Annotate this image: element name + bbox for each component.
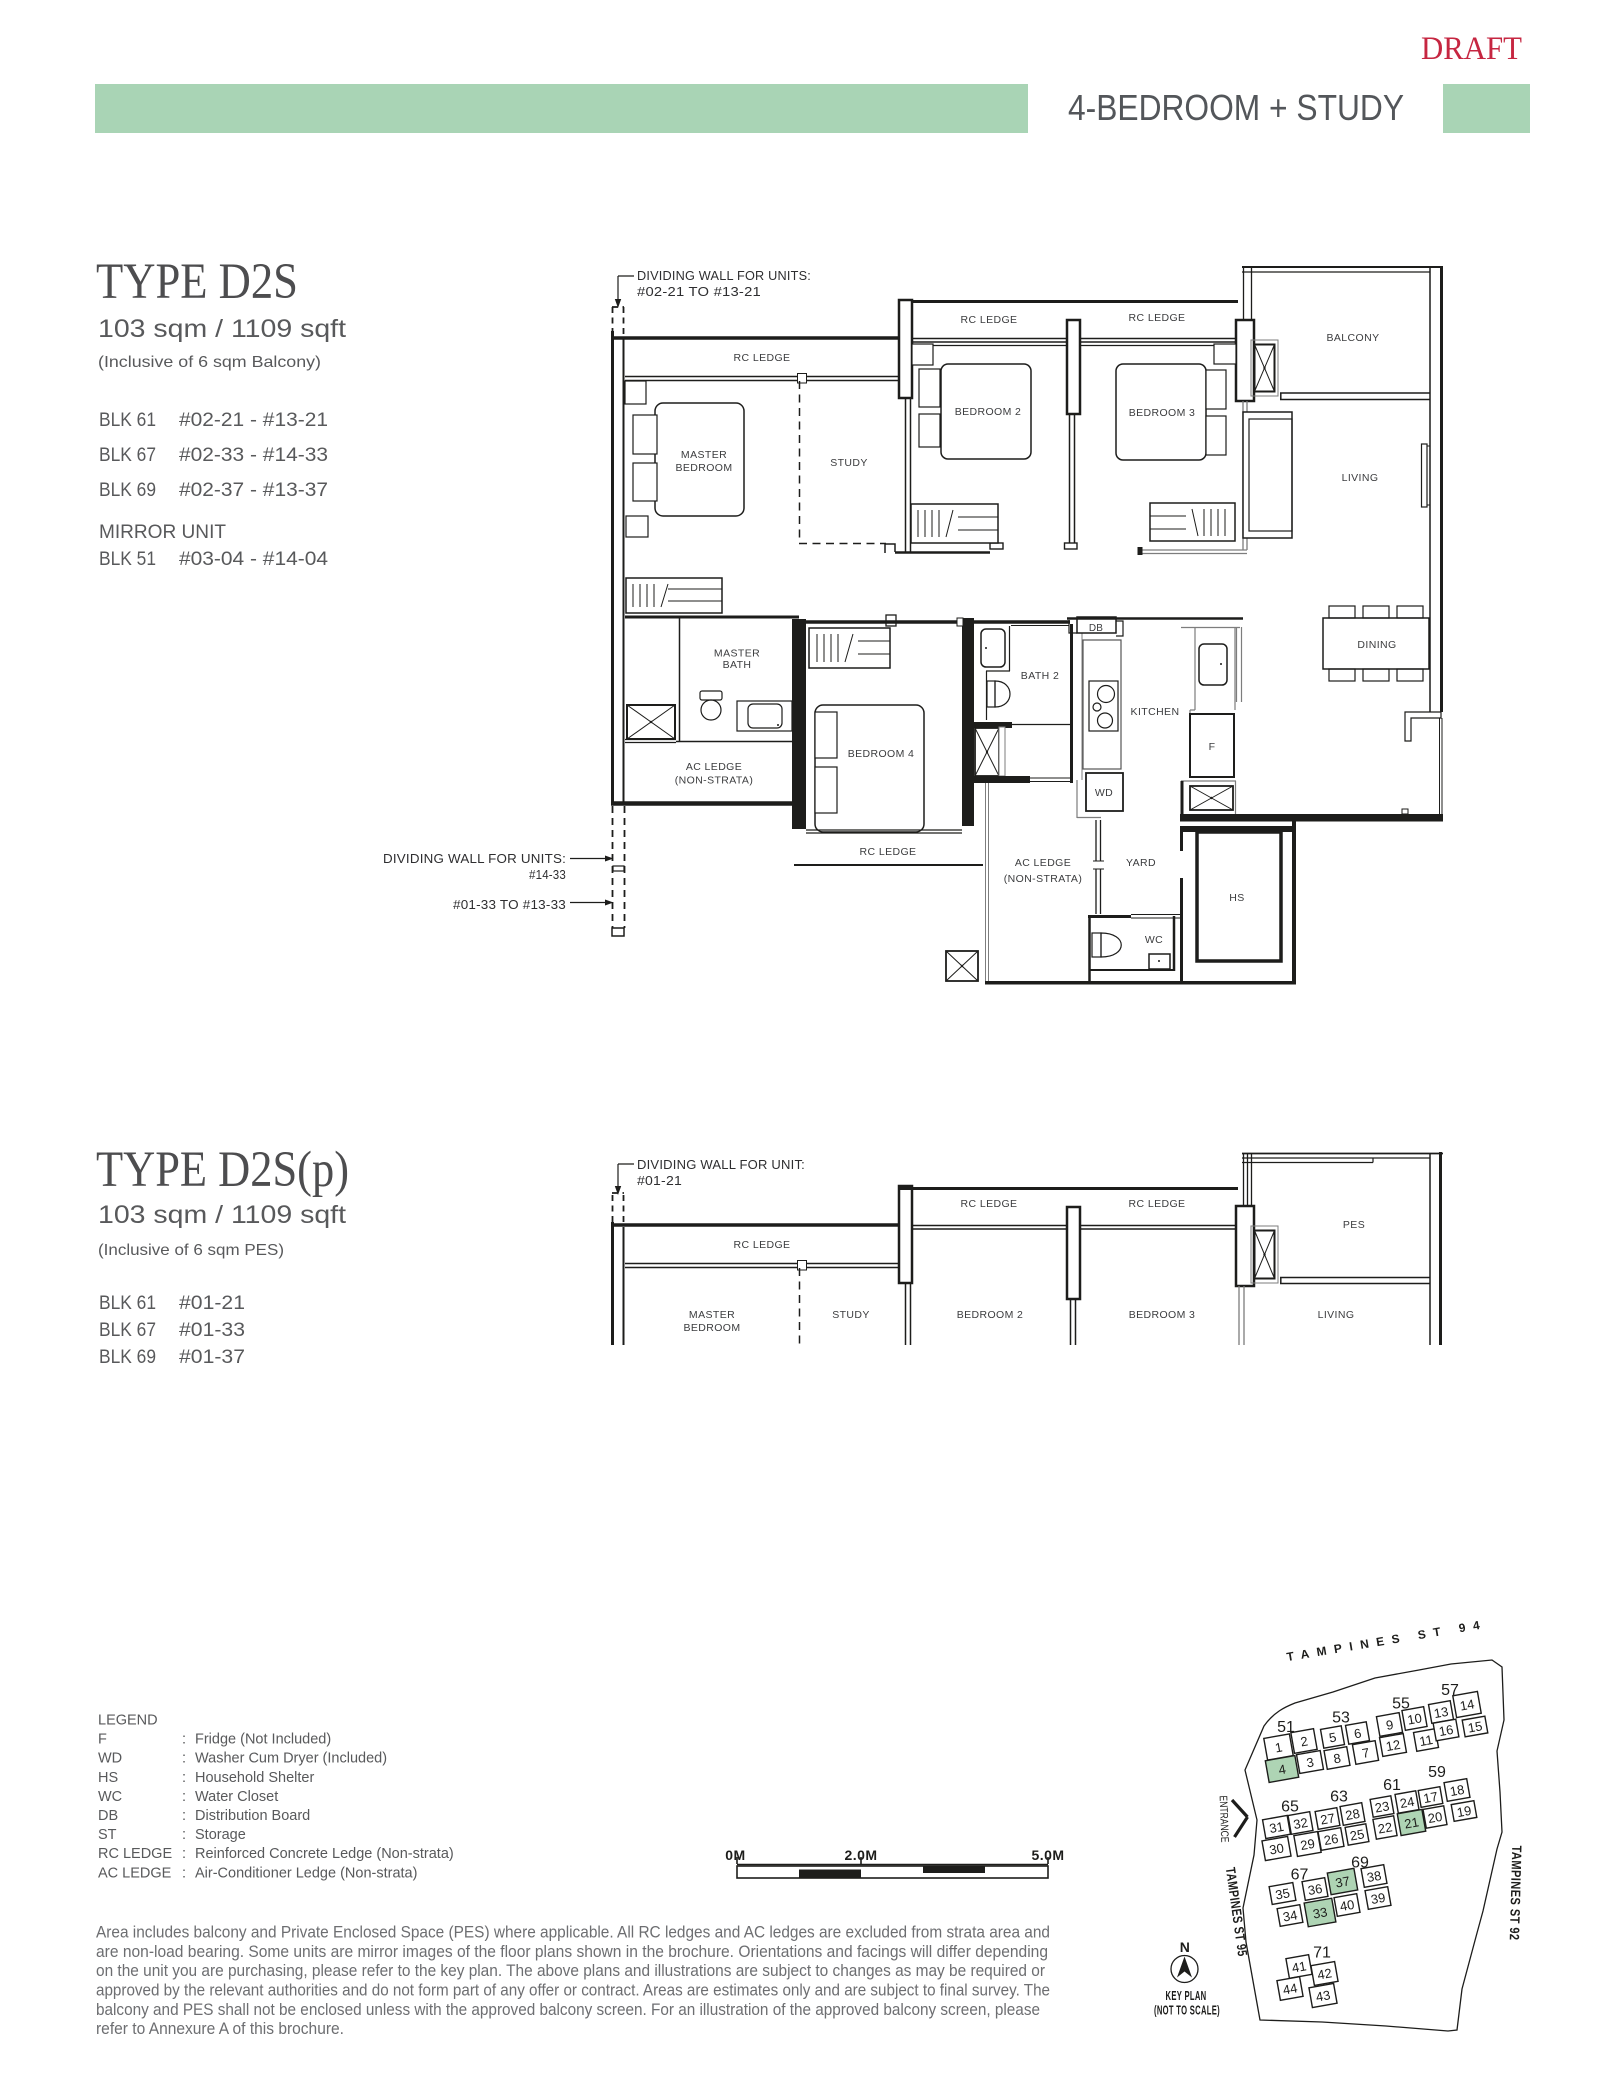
- svg-text:RC LEDGE: RC LEDGE: [961, 314, 1018, 326]
- svg-text:KITCHEN: KITCHEN: [1131, 706, 1180, 718]
- svg-text:DINING: DINING: [1357, 639, 1396, 651]
- svg-text:59: 59: [1428, 1764, 1446, 1781]
- svg-text:0M: 0M: [725, 1847, 745, 1863]
- svg-text::: :: [182, 1789, 186, 1805]
- svg-text:DB: DB: [1089, 623, 1103, 634]
- svg-text:DRAFT: DRAFT: [1421, 31, 1522, 67]
- svg-text:4-BEDROOM + STUDY: 4-BEDROOM + STUDY: [1068, 87, 1404, 128]
- svg-text:(NOT TO SCALE): (NOT TO SCALE): [1154, 2004, 1220, 2018]
- svg-text:(NON-STRATA): (NON-STRATA): [1004, 873, 1083, 885]
- svg-text:#02-33 - #14-33: #02-33 - #14-33: [179, 445, 328, 466]
- svg-text:22: 22: [1377, 1819, 1394, 1836]
- svg-text:DIVIDING WALL FOR UNITS:: DIVIDING WALL FOR UNITS:: [637, 269, 811, 283]
- svg-text:11: 11: [1418, 1732, 1434, 1749]
- svg-text:DB: DB: [98, 1808, 118, 1824]
- svg-text:WC: WC: [1145, 934, 1163, 946]
- svg-text::: :: [182, 1827, 186, 1843]
- svg-text:40: 40: [1339, 1897, 1356, 1914]
- svg-text:BALCONY: BALCONY: [1327, 332, 1380, 344]
- svg-text:Water Closet: Water Closet: [195, 1789, 278, 1805]
- svg-text:35: 35: [1274, 1885, 1291, 1902]
- svg-text::: :: [182, 1751, 186, 1767]
- svg-text:TAMPINES ST 94: TAMPINES ST 94: [1286, 1618, 1482, 1664]
- svg-text:F: F: [98, 1732, 107, 1748]
- svg-text:#02-21 TO #13-21: #02-21 TO #13-21: [637, 285, 761, 299]
- svg-text:19: 19: [1456, 1803, 1473, 1820]
- svg-text:#01-33: #01-33: [179, 1320, 245, 1341]
- svg-text:(Inclusive of 6 sqm PES): (Inclusive of 6 sqm PES): [98, 1242, 284, 1259]
- svg-text:BEDROOM: BEDROOM: [683, 1322, 740, 1334]
- svg-text:24: 24: [1399, 1794, 1416, 1811]
- svg-text:BLK 61: BLK 61: [99, 410, 156, 431]
- svg-text:are non-load bearing. Some uni: are non-load bearing. Some units are mir…: [96, 1942, 1048, 1961]
- svg-text:37: 37: [1334, 1873, 1351, 1890]
- svg-text:AC LEDGE: AC LEDGE: [98, 1865, 172, 1881]
- svg-text:STUDY: STUDY: [830, 457, 868, 469]
- svg-text:RC LEDGE: RC LEDGE: [1129, 312, 1186, 324]
- svg-text:32: 32: [1292, 1815, 1309, 1832]
- svg-text:RC LEDGE: RC LEDGE: [1129, 1198, 1186, 1210]
- svg-text:53: 53: [1332, 1710, 1350, 1727]
- svg-text:#01-37: #01-37: [179, 1347, 245, 1368]
- svg-text:23: 23: [1374, 1798, 1391, 1815]
- svg-text:28: 28: [1344, 1806, 1361, 1823]
- svg-text:RC LEDGE: RC LEDGE: [734, 352, 791, 364]
- svg-text:#03-04 - #14-04: #03-04 - #14-04: [179, 549, 328, 570]
- svg-text:69: 69: [1351, 1855, 1369, 1872]
- svg-text:Area includes balcony and Priv: Area includes balcony and Private Enclos…: [96, 1923, 1050, 1942]
- svg-text:BLK 61: BLK 61: [99, 1293, 156, 1314]
- svg-text:STUDY: STUDY: [832, 1309, 870, 1321]
- svg-text:65: 65: [1281, 1799, 1299, 1816]
- svg-text:DIVIDING WALL FOR UNITS:: DIVIDING WALL FOR UNITS:: [383, 852, 566, 866]
- svg-text:12: 12: [1385, 1737, 1402, 1754]
- svg-text:29: 29: [1299, 1836, 1316, 1853]
- svg-text:33: 33: [1312, 1904, 1329, 1921]
- svg-text:#01-33 TO #13-33: #01-33 TO #13-33: [453, 898, 566, 912]
- svg-text::: :: [182, 1865, 186, 1881]
- svg-text:18: 18: [1449, 1782, 1466, 1799]
- svg-text:balcony and PES shall not be e: balcony and PES shall not be enclosed un…: [96, 2000, 1040, 2019]
- svg-text:21: 21: [1403, 1814, 1420, 1831]
- svg-text:BLK 51: BLK 51: [99, 549, 156, 570]
- svg-text:36: 36: [1307, 1881, 1324, 1898]
- svg-text:Fridge (Not Included): Fridge (Not Included): [195, 1732, 331, 1748]
- svg-text:Storage: Storage: [195, 1827, 246, 1843]
- svg-text:MASTER: MASTER: [681, 449, 727, 461]
- svg-text:(Inclusive of 6 sqm Balcony): (Inclusive of 6 sqm Balcony): [98, 354, 321, 371]
- svg-text:34: 34: [1282, 1907, 1299, 1924]
- svg-text:31: 31: [1268, 1819, 1285, 1836]
- svg-text:PES: PES: [1343, 1219, 1365, 1231]
- svg-text::: :: [182, 1770, 186, 1786]
- svg-text:26: 26: [1323, 1831, 1340, 1848]
- svg-text:103 sqm / 1109 sqft: 103 sqm / 1109 sqft: [98, 1201, 346, 1229]
- svg-text:39: 39: [1370, 1890, 1387, 1907]
- svg-text:25: 25: [1349, 1826, 1366, 1843]
- svg-text:WD: WD: [98, 1751, 122, 1767]
- svg-text:Washer Cum Dryer (Included): Washer Cum Dryer (Included): [195, 1751, 387, 1767]
- svg-text:MIRROR UNIT: MIRROR UNIT: [99, 522, 226, 543]
- svg-text:Reinforced Concrete Ledge (Non: Reinforced Concrete Ledge (Non-strata): [195, 1846, 454, 1862]
- svg-text:Household Shelter: Household Shelter: [195, 1770, 314, 1786]
- svg-text:#01-21: #01-21: [179, 1293, 245, 1314]
- svg-text:55: 55: [1392, 1696, 1410, 1713]
- svg-text:BEDROOM 3: BEDROOM 3: [1129, 407, 1196, 419]
- svg-text:#02-21 - #13-21: #02-21 - #13-21: [179, 410, 328, 431]
- svg-text::: :: [182, 1808, 186, 1824]
- svg-text:on the unit you are purchasing: on the unit you are purchasing, please r…: [96, 1961, 1045, 1980]
- svg-text:Air-Conditioner Ledge (Non-str: Air-Conditioner Ledge (Non-strata): [195, 1865, 417, 1881]
- svg-text:WD: WD: [1095, 787, 1113, 799]
- svg-text:#02-37 - #13-37: #02-37 - #13-37: [179, 480, 328, 501]
- svg-text:MASTER: MASTER: [714, 648, 760, 660]
- svg-text:BLK 67: BLK 67: [99, 445, 156, 466]
- svg-text:DIVIDING WALL FOR UNIT:: DIVIDING WALL FOR UNIT:: [637, 1158, 805, 1172]
- svg-text:RC LEDGE: RC LEDGE: [860, 846, 917, 858]
- svg-text:63: 63: [1330, 1789, 1348, 1806]
- svg-text::: :: [182, 1846, 186, 1862]
- svg-text:RC LEDGE: RC LEDGE: [98, 1846, 172, 1862]
- svg-text:16: 16: [1438, 1722, 1455, 1739]
- svg-text:LIVING: LIVING: [1342, 472, 1379, 484]
- svg-text:AC LEDGE: AC LEDGE: [686, 761, 742, 773]
- svg-text:LIVING: LIVING: [1318, 1309, 1355, 1321]
- svg-text:KEY PLAN: KEY PLAN: [1166, 1989, 1207, 2003]
- svg-text:TAMPINES ST 92: TAMPINES ST 92: [1507, 1845, 1524, 1940]
- svg-text:61: 61: [1383, 1777, 1401, 1794]
- svg-text::: :: [182, 1732, 186, 1748]
- svg-text:BEDROOM 4: BEDROOM 4: [848, 748, 915, 760]
- svg-text:F: F: [1209, 741, 1216, 753]
- svg-text:YARD: YARD: [1126, 857, 1156, 869]
- svg-text:67: 67: [1291, 1867, 1309, 1884]
- svg-text:(NON-STRATA): (NON-STRATA): [675, 775, 754, 787]
- svg-text:51: 51: [1277, 1719, 1295, 1736]
- svg-text:WC: WC: [98, 1789, 122, 1805]
- svg-text:refer to Annexure A of this br: refer to Annexure A of this brochure.: [96, 2019, 344, 2038]
- svg-text:103 sqm / 1109 sqft: 103 sqm / 1109 sqft: [98, 315, 346, 343]
- svg-text:43: 43: [1315, 1987, 1332, 2004]
- svg-text:27: 27: [1319, 1810, 1336, 1827]
- svg-text:41: 41: [1291, 1958, 1308, 1975]
- svg-text:15: 15: [1467, 1718, 1484, 1735]
- svg-text:HS: HS: [98, 1770, 118, 1786]
- svg-text:57: 57: [1441, 1682, 1459, 1699]
- svg-text:20: 20: [1427, 1809, 1444, 1826]
- svg-text:LEGEND: LEGEND: [98, 1713, 158, 1729]
- svg-text:BEDROOM 2: BEDROOM 2: [955, 406, 1022, 418]
- svg-text:TAMPINES ST 95: TAMPINES ST 95: [1223, 1866, 1250, 1957]
- svg-text:MASTER: MASTER: [689, 1309, 735, 1321]
- svg-text:71: 71: [1313, 1945, 1331, 1962]
- svg-text:HS: HS: [1229, 892, 1244, 904]
- svg-text:44: 44: [1282, 1980, 1299, 1997]
- svg-text:#01-21: #01-21: [637, 1174, 682, 1188]
- svg-text:#14-33: #14-33: [529, 868, 566, 882]
- svg-text:30: 30: [1268, 1840, 1285, 1857]
- svg-text:BLK 69: BLK 69: [99, 1347, 156, 1368]
- svg-text:BEDROOM: BEDROOM: [675, 462, 732, 474]
- svg-text:TYPE D2S(p): TYPE D2S(p): [96, 1142, 349, 1198]
- svg-text:13: 13: [1433, 1704, 1450, 1721]
- svg-text:BEDROOM 3: BEDROOM 3: [1129, 1309, 1196, 1321]
- svg-text:BEDROOM 2: BEDROOM 2: [957, 1309, 1024, 1321]
- svg-text:14: 14: [1459, 1696, 1476, 1713]
- svg-text:approved by the relevant autho: approved by the relevant authorities and…: [96, 1981, 1050, 2000]
- svg-text:BATH 2: BATH 2: [1021, 670, 1059, 682]
- svg-text:10: 10: [1406, 1710, 1423, 1727]
- svg-text:17: 17: [1422, 1789, 1439, 1806]
- svg-text:Distribution Board: Distribution Board: [195, 1808, 310, 1824]
- svg-text:BLK 69: BLK 69: [99, 480, 156, 501]
- svg-text:AC LEDGE: AC LEDGE: [1015, 857, 1071, 869]
- svg-text:ST: ST: [98, 1827, 117, 1843]
- svg-text:RC LEDGE: RC LEDGE: [961, 1198, 1018, 1210]
- svg-text:42: 42: [1316, 1965, 1333, 1982]
- svg-text:ENTRANCE: ENTRANCE: [1217, 1795, 1231, 1842]
- svg-text:RC LEDGE: RC LEDGE: [734, 1239, 791, 1251]
- svg-text:BLK 67: BLK 67: [99, 1320, 156, 1341]
- svg-text:N: N: [1180, 1939, 1191, 1955]
- svg-text:BATH: BATH: [723, 659, 752, 671]
- svg-text:TYPE D2S: TYPE D2S: [96, 254, 298, 310]
